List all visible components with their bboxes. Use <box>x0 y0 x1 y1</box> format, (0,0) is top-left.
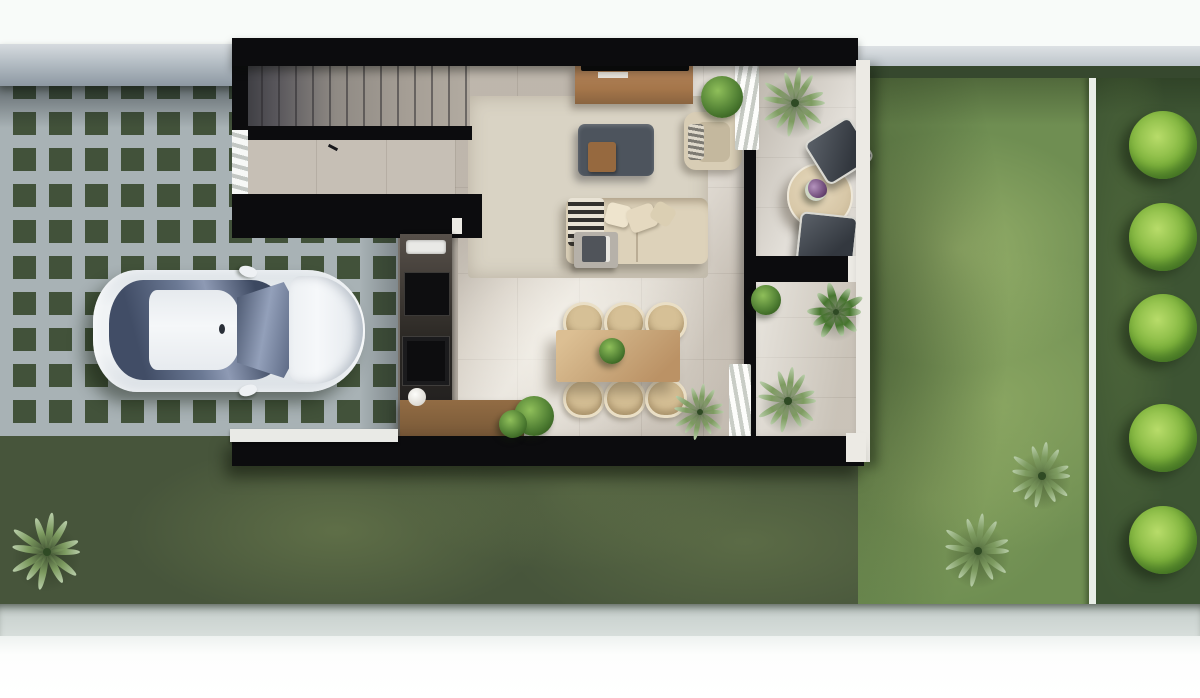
louver-curtain <box>735 62 759 150</box>
architectural-render <box>0 0 1200 698</box>
street-sidewalk <box>0 604 1200 638</box>
east-facade-wall <box>856 60 870 462</box>
west-wall <box>232 60 248 132</box>
entry-door <box>232 130 248 194</box>
garden-path <box>1089 74 1096 608</box>
boundary-hedge <box>858 66 1200 78</box>
car-windshield <box>237 282 289 378</box>
dining-chair <box>563 378 605 418</box>
console-decor <box>598 72 628 78</box>
dining-chair <box>645 378 687 418</box>
car-roof-panel <box>149 290 239 370</box>
kitchen-oven <box>404 272 450 316</box>
staircase <box>246 62 470 128</box>
terrace-south-wall <box>744 256 858 282</box>
book-stack <box>582 236 610 262</box>
car-antenna <box>219 324 225 334</box>
louver-curtain <box>729 364 751 446</box>
roof-parapet <box>232 38 858 66</box>
street-margin <box>0 636 1200 698</box>
tv-console <box>575 66 693 104</box>
kitchen-basin <box>408 388 426 406</box>
stair-wall <box>246 126 472 140</box>
rear-lawn <box>858 66 1098 606</box>
entry-hall-floor <box>246 138 458 196</box>
dining-chair <box>604 378 646 418</box>
dining-table <box>556 330 680 382</box>
tree-border-strip <box>1094 66 1200 606</box>
parked-sedan <box>93 268 365 394</box>
kitchen-cooktop <box>402 336 450 386</box>
throw-blanket <box>688 124 704 160</box>
courtyard-floor <box>756 282 858 438</box>
wall-cap <box>846 433 866 462</box>
kitchen-sink <box>406 240 446 254</box>
wood-tray <box>588 142 616 172</box>
boundary-wall-left <box>0 44 234 86</box>
porch-step <box>230 429 398 442</box>
wall-cap <box>452 218 462 234</box>
